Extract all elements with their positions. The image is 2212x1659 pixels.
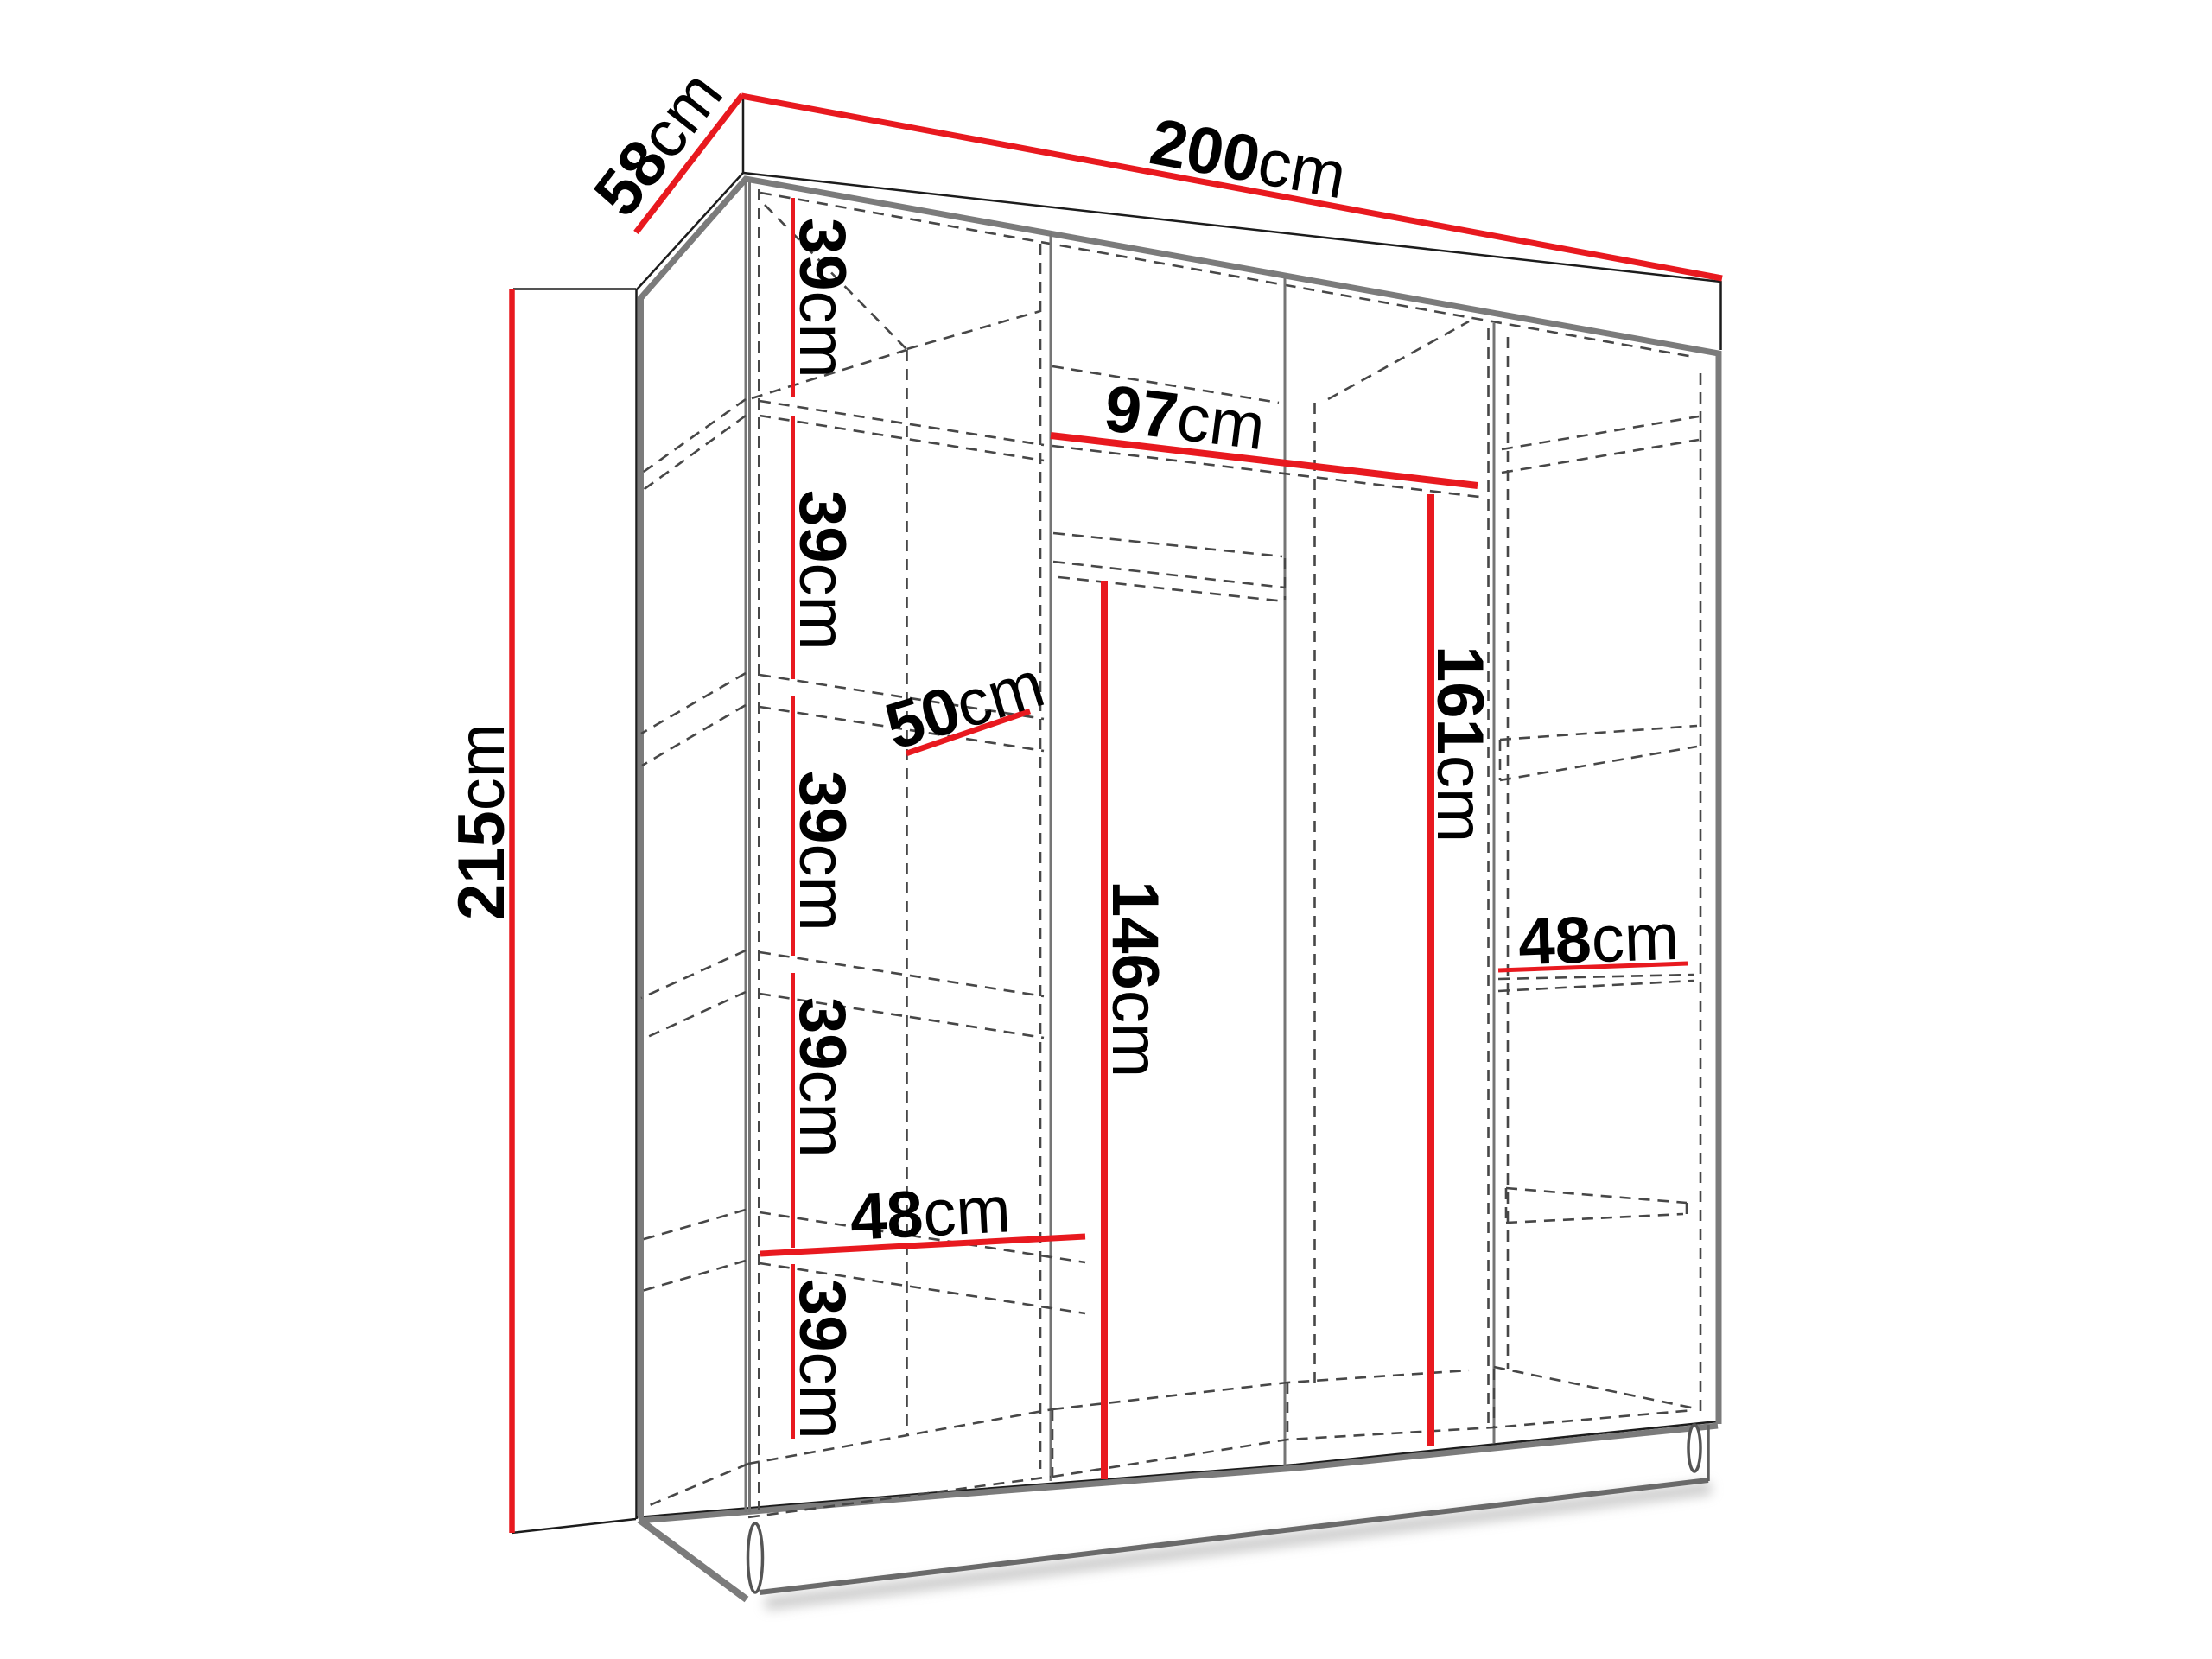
svg-text:48cm: 48cm [849, 1173, 1013, 1255]
svg-text:39cm: 39cm [785, 771, 859, 931]
svg-text:39cm: 39cm [785, 490, 859, 651]
svg-text:146cm: 146cm [1098, 880, 1172, 1077]
svg-text:215cm: 215cm [445, 723, 518, 920]
svg-text:39cm: 39cm [785, 218, 859, 378]
svg-text:39cm: 39cm [785, 997, 859, 1158]
svg-text:48cm: 48cm [1517, 900, 1681, 979]
svg-text:161cm: 161cm [1423, 645, 1497, 842]
svg-text:39cm: 39cm [785, 1279, 859, 1440]
